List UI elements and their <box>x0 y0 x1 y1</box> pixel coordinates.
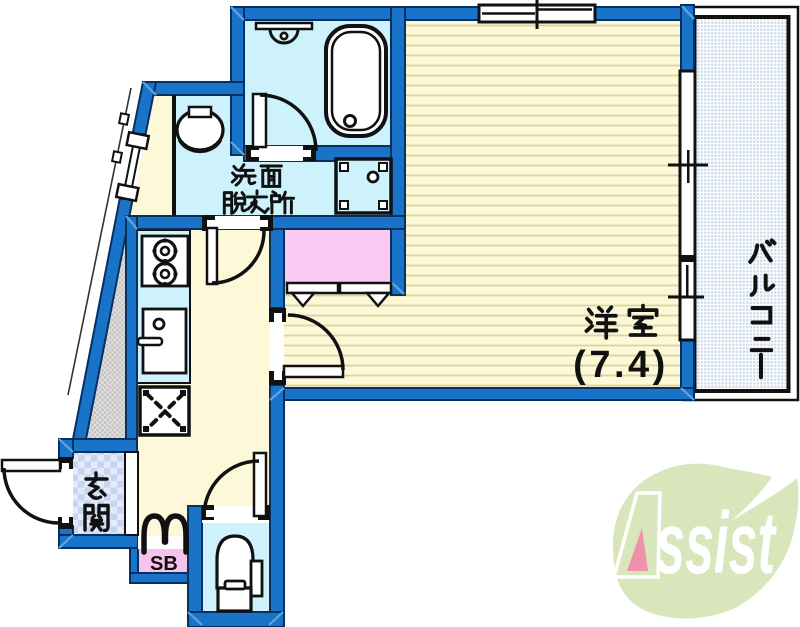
svg-text:ssist: ssist <box>656 495 777 592</box>
svg-text:SB: SB <box>150 553 178 575</box>
svg-text:(7.4): (7.4) <box>573 344 669 386</box>
